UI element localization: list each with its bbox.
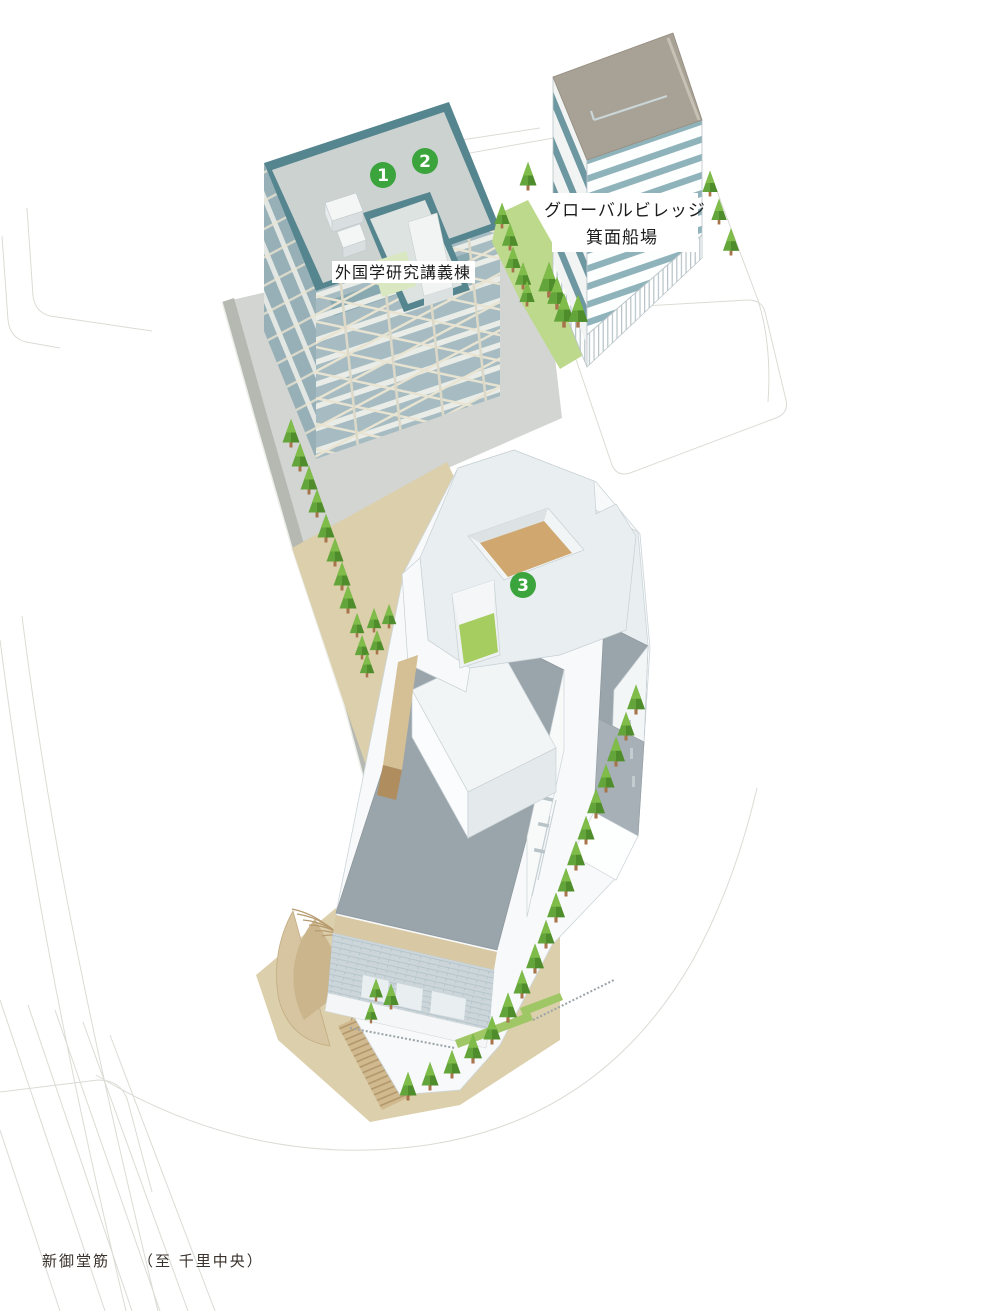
- building-1-name: 外国学研究講義棟: [335, 263, 471, 282]
- marker-1[interactable]: 1: [370, 162, 396, 188]
- building-2-name-line2: 箕面船場: [586, 228, 658, 248]
- label-building-1[interactable]: 外国学研究講義棟: [332, 261, 475, 283]
- road-direction: （至 千里中央）: [138, 1252, 264, 1270]
- marker-number: 2: [419, 152, 431, 172]
- marker-3[interactable]: 3: [510, 572, 536, 598]
- road-label: 新御堂筋 （至 千里中央）: [42, 1252, 264, 1270]
- road-name: 新御堂筋: [42, 1252, 110, 1270]
- marker-number: 1: [377, 166, 389, 186]
- marker-2[interactable]: 2: [412, 148, 438, 174]
- marker-number: 3: [517, 576, 529, 596]
- site-map: 123 外国学研究講義棟 グローバルビレッジ 箕面船場 新御堂筋 （至 千里中央…: [0, 0, 1000, 1311]
- building-2-name-line1: グローバルビレッジ: [544, 201, 706, 221]
- label-building-2[interactable]: グローバルビレッジ 箕面船場: [544, 193, 706, 252]
